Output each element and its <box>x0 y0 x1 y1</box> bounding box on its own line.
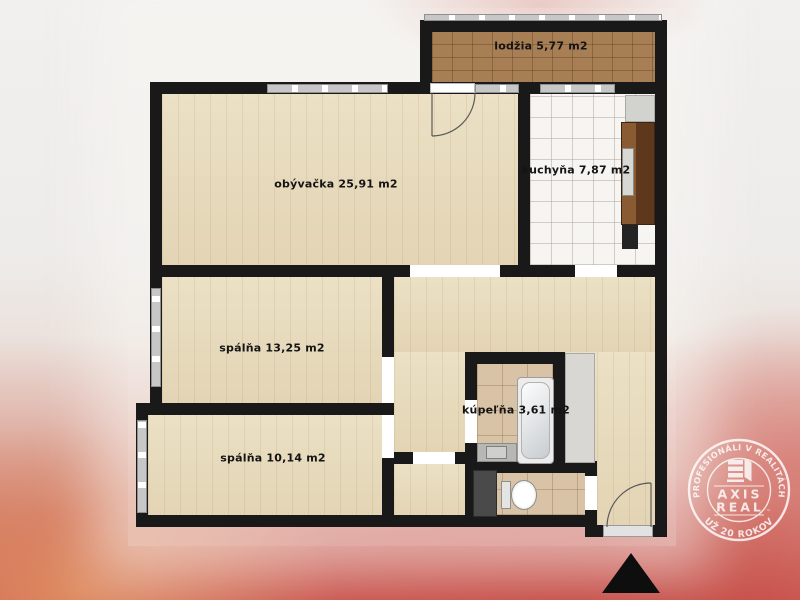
stamp-arc-bottom-text: UŽ 20 ROKOV <box>702 516 776 540</box>
axis-real-building-icon <box>727 458 752 482</box>
floorplan-page: { "plan": { "rooms": [ {"id": "lodzia", … <box>0 0 800 600</box>
stamp-brand-real: REAL <box>716 500 764 515</box>
agency-watermark-stamp: PROFESIONÁLI V REALITÁCH UŽ 20 ROKOV AXI… <box>0 0 800 600</box>
stamp-trademark: ™ <box>766 509 771 515</box>
